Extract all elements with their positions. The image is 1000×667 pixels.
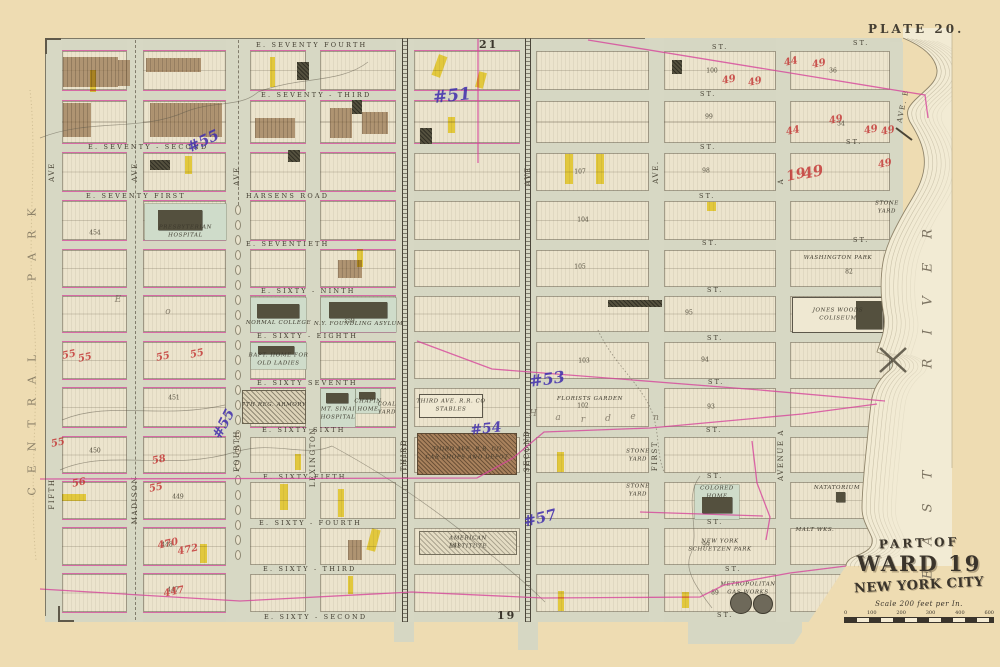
plate-number: PLATE 20. [868, 22, 964, 36]
scale-tick-label: 600 [984, 610, 994, 616]
title-cartouche: PART OF WARD 19 NEW YORK CITY Scale 200 … [842, 536, 996, 623]
pink-survey-line [752, 441, 770, 540]
central-park-label: CENTRAL PARK [26, 194, 39, 495]
scale-tick-label: 0 [844, 610, 847, 616]
cartouche-line3: NEW YORK CITY [842, 574, 997, 597]
adjacent-plate-bottom: 19 [497, 609, 516, 622]
adjacent-plate-top: 21 [479, 38, 498, 51]
corner-mark-bottomleft [58, 606, 74, 622]
scale-tick-label: 400 [955, 610, 965, 616]
cartouche-line2: WARD 19 [842, 551, 996, 576]
cartouche-line1: PART OF [842, 533, 996, 552]
scale-tick-label: 200 [896, 610, 906, 616]
neatline-top [45, 38, 645, 39]
pink-survey-line [588, 40, 928, 118]
scale-bar [844, 617, 994, 623]
east-river-label: EAST RIVER [921, 205, 936, 579]
corner-mark-topleft [45, 38, 61, 54]
atlas-map: PRESBYTERIAN HOSPITALNORMAL COLLEGEN.Y. … [0, 0, 1000, 667]
pink-survey-line [640, 512, 763, 516]
pink-survey-line [417, 341, 885, 401]
pink-survey-line [40, 566, 846, 601]
scale-tick-label: 100 [867, 610, 877, 616]
scale-tick-label: 300 [926, 610, 936, 616]
scale-ticks: 0100200300400600 [842, 610, 996, 616]
scale-label: Scale 200 feet per In. [842, 600, 996, 608]
neatline-left [45, 38, 46, 616]
